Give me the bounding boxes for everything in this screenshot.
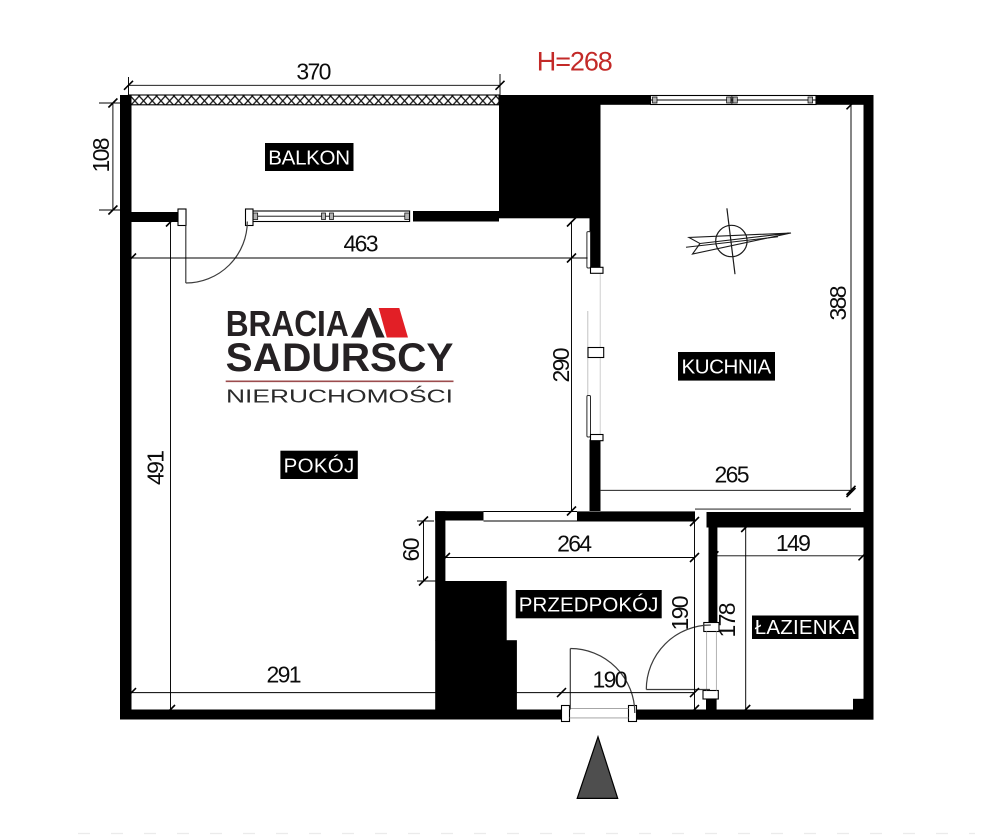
svg-text:KUCHNIA: KUCHNIA (682, 356, 772, 379)
svg-text:178: 178 (714, 603, 740, 638)
svg-text:PRZEDPOKÓJ: PRZEDPOKÓJ (519, 594, 659, 617)
svg-text:264: 264 (557, 530, 592, 556)
svg-text:388: 388 (825, 286, 851, 321)
svg-text:190: 190 (593, 666, 628, 692)
svg-text:SADURSCY: SADURSCY (226, 336, 454, 380)
svg-text:291: 291 (267, 662, 302, 688)
svg-text:370: 370 (296, 59, 331, 85)
svg-text:POKÓJ: POKÓJ (284, 454, 355, 477)
svg-text:491: 491 (143, 450, 169, 485)
svg-text:265: 265 (715, 462, 750, 488)
svg-text:H=268: H=268 (537, 46, 613, 76)
svg-text:149: 149 (776, 530, 811, 556)
svg-text:NIERUCHOMOŚCI: NIERUCHOMOŚCI (226, 386, 453, 407)
svg-text:290: 290 (548, 348, 574, 383)
svg-text:BALKON: BALKON (268, 147, 350, 170)
svg-text:190: 190 (667, 596, 693, 631)
svg-text:ŁAZIENKA: ŁAZIENKA (755, 616, 856, 639)
svg-text:108: 108 (88, 138, 114, 173)
svg-text:60: 60 (398, 538, 424, 562)
svg-text:463: 463 (344, 231, 379, 257)
